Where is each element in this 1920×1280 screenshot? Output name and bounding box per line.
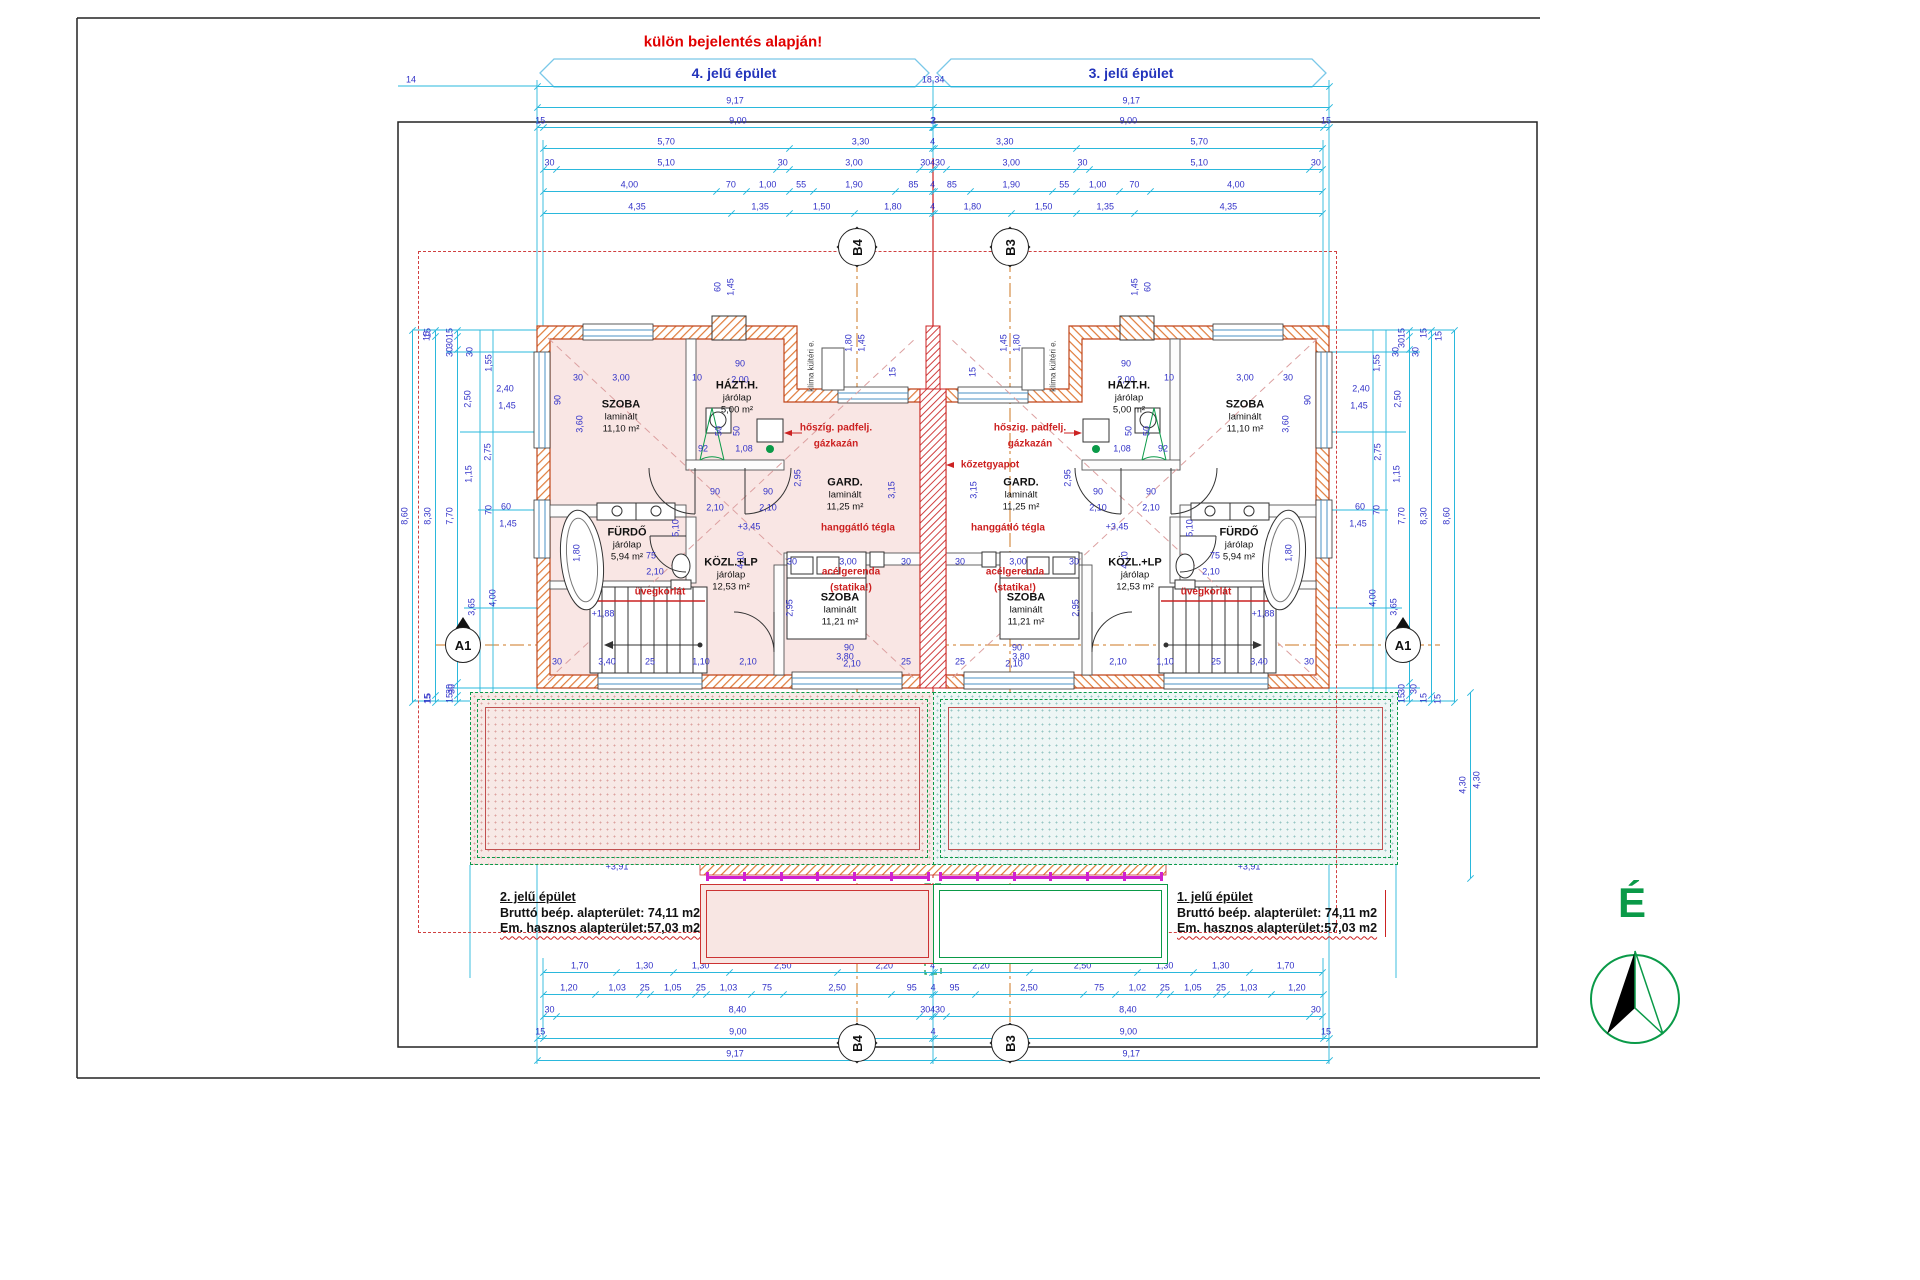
dim-label: 30 [1411,347,1420,357]
room-label-line: laminált [602,412,641,424]
railing-post [816,872,819,881]
dim-label: 1,30 [636,961,654,970]
dim-label: 3,00 [845,158,863,167]
dim-label: 2,75 [1373,443,1382,461]
dim-label: 85 [908,180,918,189]
dim-label: 8,40 [729,1005,747,1014]
dim-label: 14 [406,75,416,84]
section-marker-label: A1 [455,638,472,653]
dim-label: 9,00 [1120,1027,1138,1036]
dim-label: 15 [1397,328,1406,338]
room-label-line: SZOBA [1226,399,1265,412]
dim-label: 30 [544,1005,554,1014]
dim-label: 9,17 [726,96,744,105]
dim-label: 9,17 [726,1049,744,1058]
canopy-left-inner [706,890,929,958]
room-label-line: 5,94 m² [607,552,646,564]
dim-label: 85 [947,180,957,189]
dim-label: 1,80 [884,202,902,211]
dim-label: 4,00 [1227,180,1245,189]
room-label: SZOBAlaminált11,21 m² [1007,592,1046,629]
dim-label: 4,35 [628,202,646,211]
room-label-line: 5,00 m² [1108,405,1150,417]
dim-label: 1,70 [571,961,589,970]
room-label-line: 11,25 m² [1003,502,1040,514]
dim-label: 15 [1397,693,1406,703]
dim-chain-line [1431,330,1432,702]
room-label: SZOBAlaminált11,10 m² [602,399,641,436]
dim-label: 30 [935,1005,945,1014]
dim-label: 1,80 [964,202,982,211]
room-label: KÖZL.+LPjárólap12,53 m² [1108,557,1161,594]
railing-post [927,872,930,881]
dim-label: 9,17 [1122,96,1140,105]
room-label-line: KÖZL.+LP [704,557,757,570]
dim-label: 15 [535,1027,545,1036]
canopy-right [933,884,1168,964]
room-label-line: SZOBA [821,592,860,605]
dim-chain-line [412,330,413,702]
room-label-line: laminált [1003,490,1040,502]
room-label-line: járólap [1108,393,1150,405]
dim-label: 5,70 [657,137,675,146]
room-label: SZOBAlaminált11,10 m² [1226,399,1265,436]
railing-post [1160,872,1163,881]
room-label-line: járólap [607,540,646,552]
room-label-line: 5,00 m² [716,405,758,417]
dim-label: 30 [1391,347,1400,357]
dim-label: 9,17 [1122,1049,1140,1058]
dim-label: 4,00 [1368,589,1377,607]
room-label-line: FÜRDŐ [607,527,646,540]
dim-label: 30 [1311,158,1321,167]
dim-label: 15 [1434,331,1443,341]
dim-label: 15 [1419,693,1428,703]
room-label: FÜRDŐjárólap5,94 m² [1219,527,1258,564]
railing-post [853,872,856,881]
grid-marker: B4 [838,1024,876,1062]
banner-left-label: 4. jelű épület [692,65,777,81]
dim-label: 8,40 [1119,1005,1137,1014]
dim-label: 30 [920,158,930,167]
dim-label: 5,10 [1190,158,1208,167]
dim-label: 2,50 [1393,390,1402,408]
dim-label: 2,40 [1352,384,1370,393]
dim-label: 1,02 [1129,983,1147,992]
dim-label: 1,05 [664,983,682,992]
railing-post [706,872,709,881]
railing-post [890,872,893,881]
dim-label: 30 [920,1005,930,1014]
dim-label: 1,30 [1212,961,1230,970]
room-label-line: 11,21 m² [1007,617,1046,629]
grid-marker: B3 [991,228,1029,266]
dim-label: 8,60 [400,507,409,525]
dim-label: 25 [696,983,706,992]
dim-label: 55 [796,180,806,189]
railing-post [780,872,783,881]
dim-label: 25 [1160,983,1170,992]
railing-post [1123,872,1126,881]
dim-label: 55 [1059,180,1069,189]
floor-plan-sheet: külön bejelentés alapján! 4. jelű épület… [0,0,1920,1280]
dim-label: 1,45 [1350,401,1368,410]
summary-right-line1: Bruttó beép. alapterület: 74,11 m2 [1177,906,1377,922]
dim-label: 1,35 [1096,202,1114,211]
section-marker: A1 [445,627,481,663]
dim-label: 95 [949,983,959,992]
dim-label: 3,65 [1389,598,1398,616]
dim-label: 15 [1433,694,1442,704]
dim-label: 1,70 [1277,961,1295,970]
section-marker-label: A1 [1395,638,1412,653]
room-label-line: KÖZL.+LP [1108,557,1161,570]
room-label: GARD.laminált11,25 m² [827,477,864,514]
room-label-line: GARD. [827,477,864,490]
summary-left: 2. jelű épület Bruttó beép. alapterület:… [500,890,700,937]
room-label-line: FÜRDŐ [1219,527,1258,540]
dim-label: 30 [778,158,788,167]
room-label: HÁZT.H.járólap5,00 m² [1108,380,1150,417]
room-label-line: járólap [1219,540,1258,552]
room-label-line: járólap [716,393,758,405]
room-label-line: 12,53 m² [704,582,757,594]
dim-label: 2,50 [1020,983,1038,992]
dim-chain-line [537,86,1329,87]
railing-post [1013,872,1016,881]
dim-label: 1,00 [759,180,777,189]
dim-label: 4,35 [1220,202,1238,211]
dim-label: 18,34 [922,75,945,84]
dim-label: 4 [930,202,935,211]
dim-label: 70 [1129,180,1139,189]
dim-label: 4,00 [621,180,639,189]
dim-label: 1,90 [1003,180,1021,189]
summary-right: 1. jelű épület Bruttó beép. alapterület:… [1177,890,1386,937]
dim-label: 4 [930,137,935,146]
banner-right-label: 3. jelű épület [1089,65,1174,81]
dim-label: 30 [1409,684,1418,694]
room-label-line: járólap [704,570,757,582]
dim-label: 4,30 [1458,776,1467,794]
room-label: FÜRDŐjárólap5,94 m² [607,527,646,564]
dim-label: 1,90 [845,180,863,189]
dim-label: 70 [1372,505,1381,515]
room-label-line: járólap [1108,570,1161,582]
railing-post [743,872,746,881]
dim-label: 9,00 [729,116,747,125]
dim-label: 3,30 [996,137,1014,146]
room-label: GARD.laminált11,25 m² [1003,477,1040,514]
dim-label: 15 [1419,328,1428,338]
dim-label: 1,50 [1035,202,1053,211]
room-label: HÁZT.H.járólap5,00 m² [716,380,758,417]
dim-label: 25 [1216,983,1226,992]
dim-label: 4,30 [1472,771,1481,789]
canopy-left [700,884,935,964]
dim-label: 1,20 [1288,983,1306,992]
grid-marker-label: B3 [1003,239,1018,256]
railing-post [939,872,942,881]
title-warning: külön bejelentés alapján! [644,34,822,51]
dim-label: 4 [931,983,936,992]
dim-label: 7,70 [1397,507,1406,525]
room-label-line: SZOBA [602,399,641,412]
grid-marker: B4 [838,228,876,266]
dim-label: 4 [931,1027,936,1036]
summary-right-line2: Em. hasznos alapterület:57,03 m2 [1177,921,1377,937]
room-label-line: GARD. [1003,477,1040,490]
dim-label: 30 [1311,1005,1321,1014]
dim-label: 9,00 [1120,116,1138,125]
dim-label: 15 [1321,116,1331,125]
dim-label: 1,03 [720,983,738,992]
dim-label: 30 [935,158,945,167]
dim-label: 1,05 [1184,983,1202,992]
railing-post [976,872,979,881]
dim-label: 5,70 [1190,137,1208,146]
section-marker: A1 [1385,627,1421,663]
railing-post [1049,872,1052,881]
dim-label: 8,60 [1442,507,1451,525]
summary-right-heading: 1. jelű épület [1177,890,1377,906]
room-label-line: 11,10 m² [1226,424,1265,436]
north-label: É [1618,879,1646,927]
room-label-line: laminált [1226,412,1265,424]
room-label-line: 12,53 m² [1108,582,1161,594]
dim-label: 9,00 [729,1027,747,1036]
dim-label: 70 [726,180,736,189]
setback-envelope [418,251,1337,933]
dim-label: 60 [1355,502,1365,511]
dim-label: 75 [1094,983,1104,992]
room-label-line: SZOBA [1007,592,1046,605]
dim-label: 1,55 [1372,354,1381,372]
dim-label: 4 [930,180,935,189]
dim-label: 1,03 [1240,983,1258,992]
grid-marker: B3 [991,1024,1029,1062]
room-label-line: 11,10 m² [602,424,641,436]
grid-marker-label: B4 [850,1035,865,1052]
dim-label: 2,50 [828,983,846,992]
dim-label: 25 [640,983,650,992]
dim-label: 3,00 [1003,158,1021,167]
room-label-line: 11,21 m² [821,617,860,629]
dim-label: 1,03 [608,983,626,992]
dim-label: 15 [1321,1027,1331,1036]
dim-label: 8,30 [1419,507,1428,525]
north-arrow-icon [1591,951,1679,1043]
grid-marker-label: B4 [850,239,865,256]
dim-label: 95 [907,983,917,992]
canopy-right-inner [939,890,1162,958]
dim-label: 75 [762,983,772,992]
dim-chain-line [1454,330,1455,702]
dim-label: 1,45 [1349,519,1367,528]
room-label-line: laminált [827,490,864,502]
room-label-line: laminált [1007,605,1046,617]
summary-left-heading: 2. jelű épület [500,890,700,906]
room-label-line: 11,25 m² [827,502,864,514]
room-label: SZOBAlaminált11,21 m² [821,592,860,629]
grid-marker-label: B3 [1003,1035,1018,1052]
dim-label: 15 [535,116,545,125]
summary-left-line2: Em. hasznos alapterület:57,03 m2 [500,921,700,937]
dim-label: 1,15 [1392,465,1401,483]
railing-post [1086,872,1089,881]
room-label-line: laminált [821,605,860,617]
room-label-line: HÁZT.H. [1108,380,1150,393]
dim-label: 30 [544,158,554,167]
dim-label: 30 [1078,158,1088,167]
dim-label: 5,10 [657,158,675,167]
dim-label: 3,30 [852,137,870,146]
room-label-line: HÁZT.H. [716,380,758,393]
room-label: KÖZL.+LPjárólap12,53 m² [704,557,757,594]
room-label-line: 5,94 m² [1219,552,1258,564]
dim-label: 1,00 [1089,180,1107,189]
dim-label: 1,20 [560,983,578,992]
dim-label: 1,50 [813,202,831,211]
summary-left-line1: Bruttó beép. alapterület: 74,11 m2 [500,906,700,922]
dim-label: 1,35 [751,202,769,211]
